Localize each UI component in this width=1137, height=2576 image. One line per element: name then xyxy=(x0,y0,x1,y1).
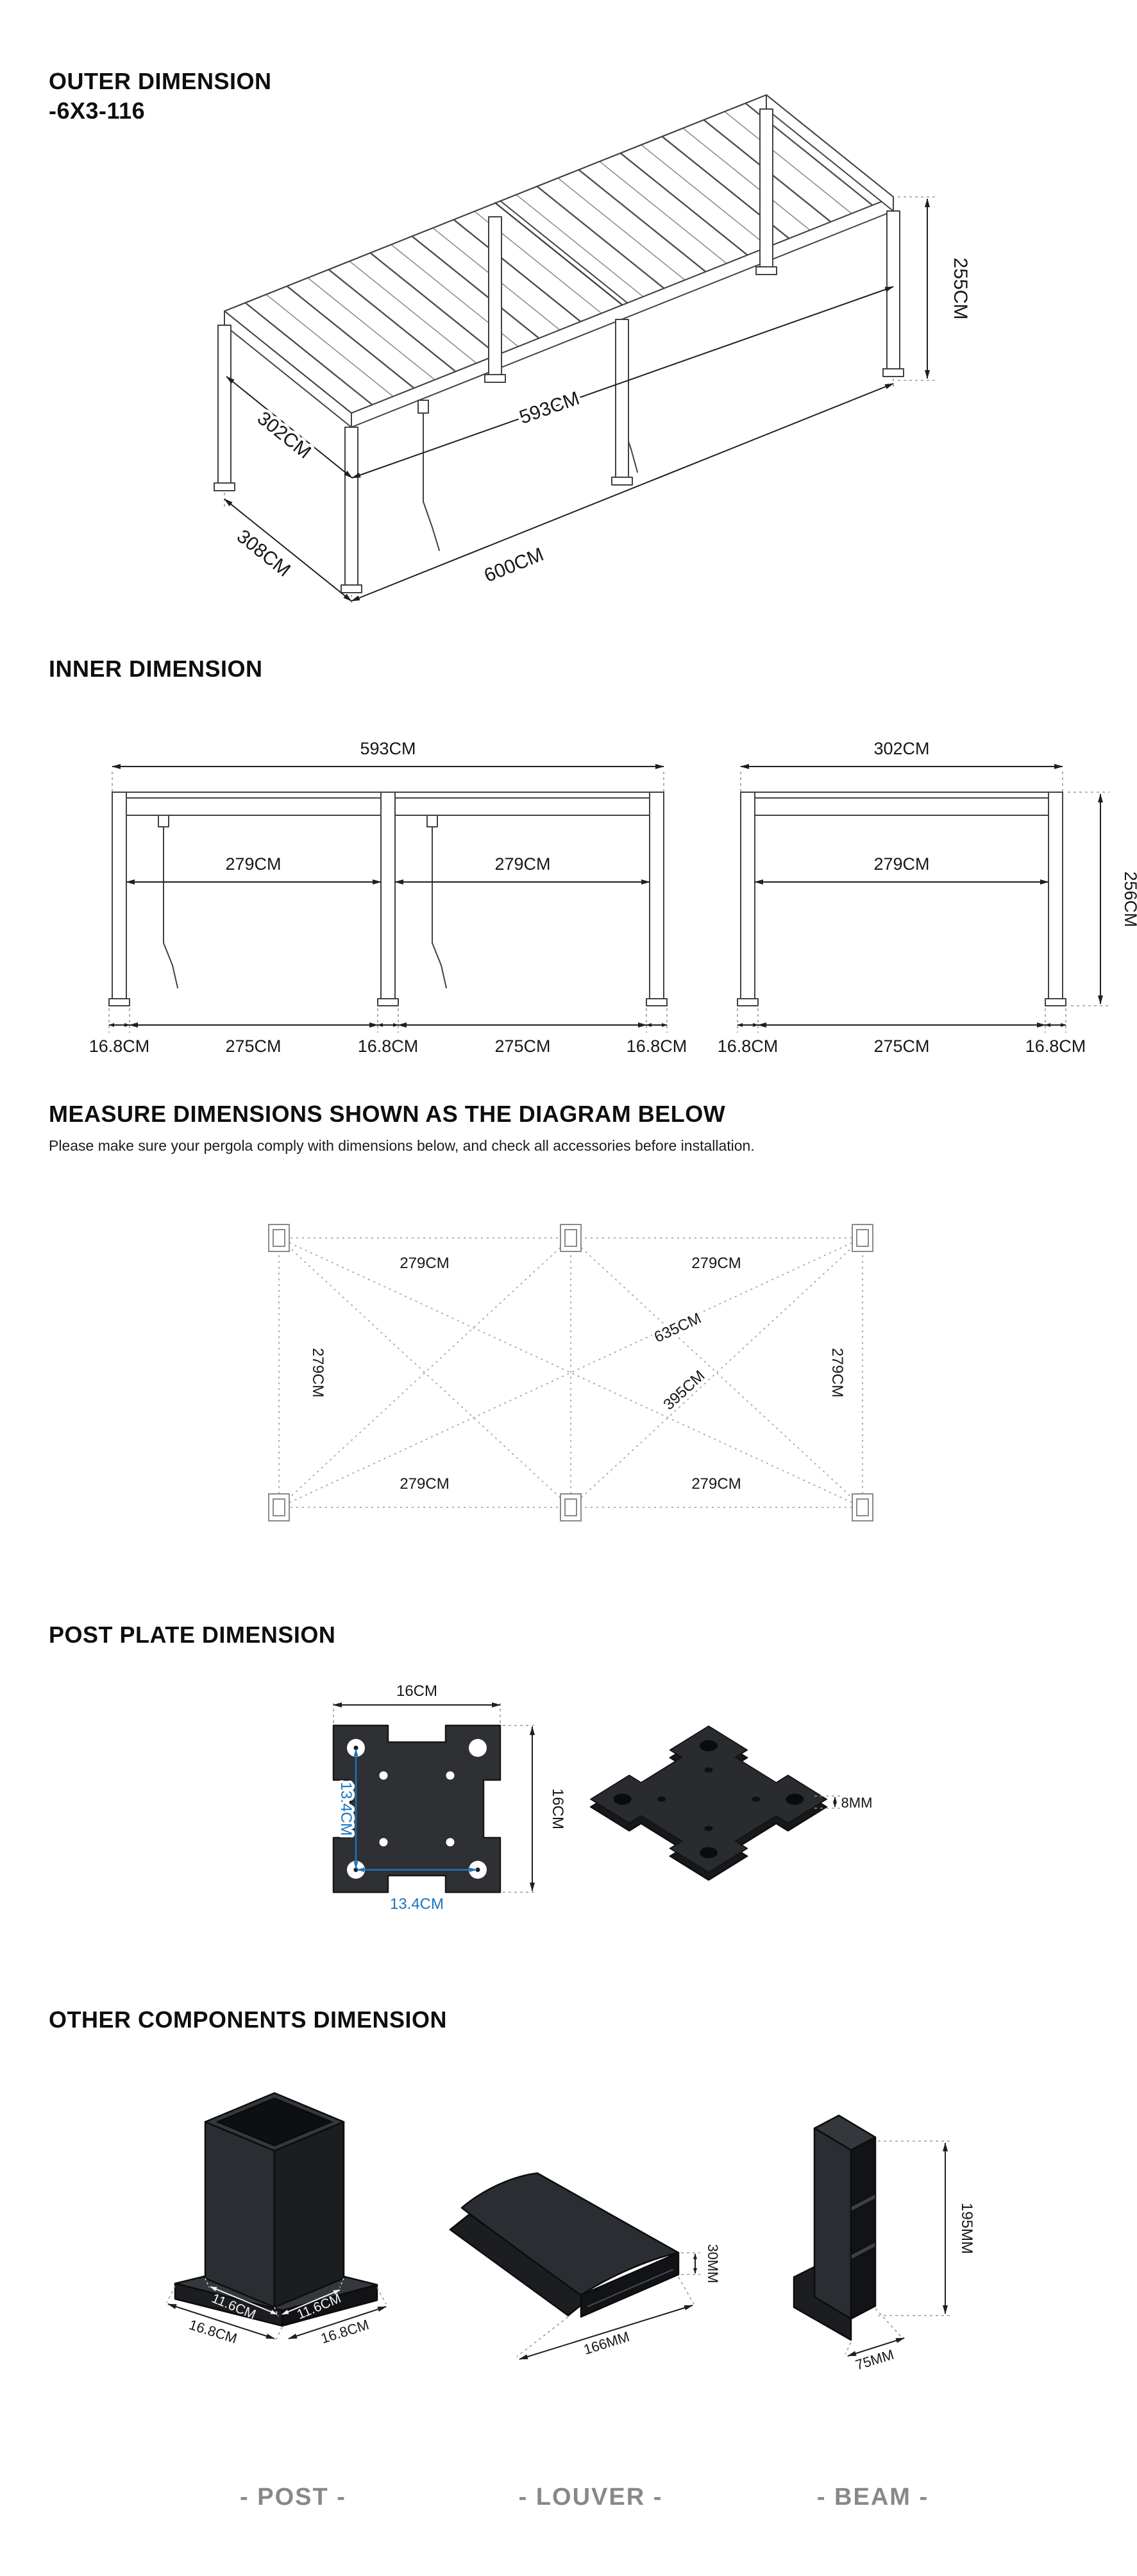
svg-text:16.8CM: 16.8CM xyxy=(718,1037,779,1056)
front-crank-left xyxy=(158,815,178,988)
plan-post-bottom-middle xyxy=(560,1494,581,1521)
svg-text:255CM: 255CM xyxy=(950,258,971,320)
post-left-face xyxy=(205,2122,274,2307)
plan-post-bottom-left xyxy=(269,1494,289,1521)
svg-text:16CM: 16CM xyxy=(396,1682,437,1700)
measure-subtitle: Please make sure your pergola comply wit… xyxy=(49,1137,755,1155)
post-plate-top-view: 16CM 16CM 13.4CM 13.4CM xyxy=(289,1681,571,1937)
side-overall-dim: 302CM xyxy=(741,739,1063,767)
measure-plan-diagram: 279CM 279CM 279CM 279CM 279CM 279CM 635C… xyxy=(231,1190,911,1562)
svg-text:8MM: 8MM xyxy=(841,1795,873,1811)
side-post-left xyxy=(737,792,758,1006)
measure-title: MEASURE DIMENSIONS SHOWN AS THE DIAGRAM … xyxy=(49,1101,725,1128)
post-front-left xyxy=(341,427,362,606)
svg-text:16.8CM: 16.8CM xyxy=(89,1037,150,1056)
plate-small-hole xyxy=(446,1772,455,1780)
plan-post-top-left xyxy=(269,1224,289,1251)
component-post: 11.6CM 11.6CM 16.8CM 16.8CM xyxy=(135,2085,430,2470)
post-plate-iso-view: 8MM xyxy=(558,1700,891,1918)
svg-text:600CM: 600CM xyxy=(481,544,546,587)
svg-text:302CM: 302CM xyxy=(253,407,315,462)
svg-text:30MM: 30MM xyxy=(705,2244,721,2283)
svg-text:279CM: 279CM xyxy=(225,854,281,874)
inner-front-overall-dim: 593CM xyxy=(112,739,664,767)
plan-diagonal-full: 635CM xyxy=(652,1310,704,1346)
post-right-face xyxy=(274,2122,344,2307)
beam-front-face xyxy=(814,2128,851,2319)
inner-front-elevation: 593CM 279CM 279CM xyxy=(87,731,696,1071)
louver-thickness-dim: 30MM xyxy=(681,2244,721,2283)
svg-text:16.8CM: 16.8CM xyxy=(319,2316,371,2346)
plan-post-top-right xyxy=(852,1224,873,1251)
beam-caption: - BEAM - xyxy=(783,2484,963,2511)
svg-text:16.8CM: 16.8CM xyxy=(627,1037,687,1056)
plan-span-right: 279CM xyxy=(829,1348,846,1397)
beam-height-dim: 195MM xyxy=(878,2141,975,2316)
plan-post-bottom-right xyxy=(852,1494,873,1521)
plate-height-dim: 16CM xyxy=(503,1725,566,1892)
inner-dimension-title: INNER DIMENSION xyxy=(49,656,263,682)
post-front-right xyxy=(883,211,904,390)
svg-text:275CM: 275CM xyxy=(494,1037,550,1056)
svg-text:275CM: 275CM xyxy=(225,1037,281,1056)
component-louver: 30MM 166MM xyxy=(442,2168,718,2380)
svg-text:256CM: 256CM xyxy=(1121,871,1137,927)
plan-post-top-middle xyxy=(560,1224,581,1251)
plate-small-hole xyxy=(446,1838,455,1847)
svg-text:593CM: 593CM xyxy=(360,739,416,758)
front-post-middle xyxy=(378,792,398,1006)
svg-text:16.8CM: 16.8CM xyxy=(358,1037,419,1056)
side-post-right xyxy=(1045,792,1066,1006)
plate-width-dim: 16CM xyxy=(333,1682,500,1723)
svg-text:279CM: 279CM xyxy=(494,854,550,874)
post-caption: - POST - xyxy=(210,2484,376,2511)
outer-dim-outer-depth: 308CM xyxy=(224,499,351,601)
post-front-middle xyxy=(612,319,632,485)
svg-text:16.8CM: 16.8CM xyxy=(1025,1037,1086,1056)
svg-text:75MM: 75MM xyxy=(854,2346,896,2373)
post-plate-title: POST PLATE DIMENSION xyxy=(49,1622,335,1648)
plate-iso-top xyxy=(591,1726,827,1872)
front-bottom-dims: 16.8CM 275CM 16.8CM 275CM 16.8CM xyxy=(89,1008,687,1056)
svg-text:308CM: 308CM xyxy=(233,525,294,580)
plan-span-top-left: 279CM xyxy=(400,1255,449,1272)
plate-small-hole xyxy=(380,1838,388,1847)
plan-diagonal-half: 395CM xyxy=(660,1367,708,1413)
front-crank-right xyxy=(427,815,446,988)
plan-span-left: 279CM xyxy=(309,1348,326,1397)
plate-hole xyxy=(469,1739,487,1757)
louver-caption: - LOUVER - xyxy=(501,2484,680,2511)
side-bay-dim: 279CM xyxy=(755,854,1049,882)
side-beam xyxy=(741,792,1063,815)
side-height-dim: 256CM xyxy=(1068,792,1137,1006)
plan-span-bottom-right: 279CM xyxy=(691,1475,741,1493)
plan-span-top-right: 279CM xyxy=(691,1255,741,1272)
front-bay-right-dim: 279CM xyxy=(395,854,650,882)
beam-open-face xyxy=(851,2137,875,2319)
plate-small-hole xyxy=(380,1772,388,1780)
components-title: OTHER COMPONENTS DIMENSION xyxy=(49,2006,447,2033)
front-post-left xyxy=(109,792,130,1006)
svg-text:302CM: 302CM xyxy=(873,739,929,758)
outer-dim-height: 255CM xyxy=(898,197,971,380)
svg-text:195MM: 195MM xyxy=(958,2203,975,2254)
outer-dimension-diagram: 302CM 593CM 308CM 600CM 255CM xyxy=(64,64,1129,648)
front-bay-left-dim: 279CM xyxy=(126,854,381,882)
svg-text:13.4CM: 13.4CM xyxy=(390,1895,444,1913)
svg-text:279CM: 279CM xyxy=(873,854,929,874)
post-back-left xyxy=(214,325,235,507)
inner-side-elevation: 302CM 279CM 256CM 16.8CM 275CM 16 xyxy=(718,731,1137,1071)
front-post-right xyxy=(646,792,667,1006)
plan-span-bottom-left: 279CM xyxy=(400,1475,449,1493)
side-bottom-dims: 16.8CM 275CM 16.8CM xyxy=(718,1008,1086,1056)
pergola-dimension-sheet: OUTER DIMENSION -6X3-116 xyxy=(0,0,1137,2576)
crank-handle-left xyxy=(418,400,439,550)
svg-text:593CM: 593CM xyxy=(517,387,582,428)
svg-text:16.8CM: 16.8CM xyxy=(187,2316,239,2346)
svg-text:275CM: 275CM xyxy=(873,1037,929,1056)
component-beam: 195MM 75MM xyxy=(789,2104,1000,2373)
beam-width-dim: 75MM xyxy=(845,2309,904,2373)
svg-text:13.4CM: 13.4CM xyxy=(337,1782,355,1836)
